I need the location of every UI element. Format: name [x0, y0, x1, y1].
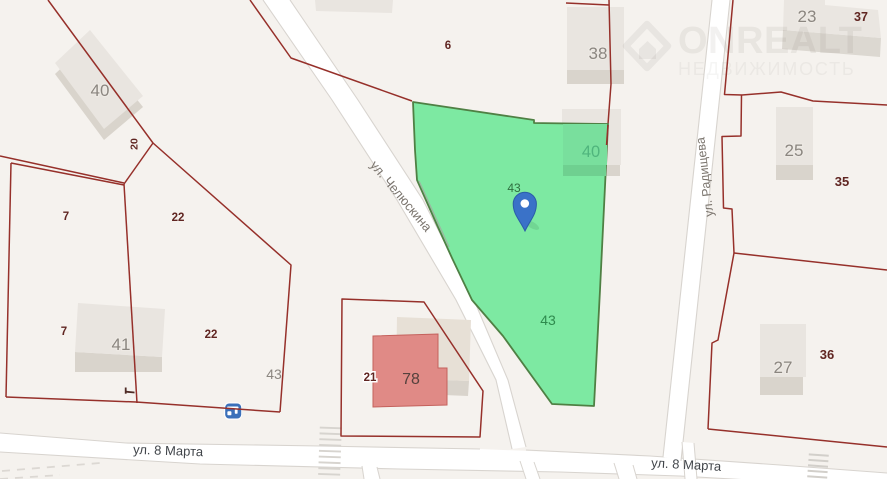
svg-text:7: 7	[63, 211, 69, 223]
svg-text:22: 22	[172, 212, 185, 224]
svg-text:21: 21	[364, 372, 377, 384]
svg-text:38: 38	[589, 44, 608, 63]
svg-text:43: 43	[540, 312, 556, 328]
svg-text:27: 27	[774, 358, 793, 377]
svg-text:25: 25	[785, 141, 804, 160]
svg-text:6: 6	[445, 40, 451, 52]
svg-text:43: 43	[507, 181, 521, 195]
svg-text:40: 40	[582, 143, 600, 161]
svg-text:ONREALT: ONREALT	[678, 20, 862, 62]
svg-text:41: 41	[112, 335, 131, 354]
svg-text:НЕДВИЖИМОСТЬ: НЕДВИЖИМОСТЬ	[678, 59, 856, 79]
svg-text:36: 36	[820, 347, 834, 362]
svg-text:23: 23	[798, 7, 817, 26]
svg-text:78: 78	[402, 371, 420, 388]
svg-text:35: 35	[835, 174, 849, 189]
svg-text:40: 40	[91, 81, 110, 100]
svg-text:37: 37	[854, 10, 868, 24]
svg-text:43: 43	[266, 366, 282, 382]
svg-text:20: 20	[129, 138, 141, 150]
svg-text:ул. 8 Марта: ул. 8 Марта	[133, 442, 204, 459]
svg-text:7: 7	[61, 326, 67, 338]
svg-text:22: 22	[205, 329, 218, 341]
